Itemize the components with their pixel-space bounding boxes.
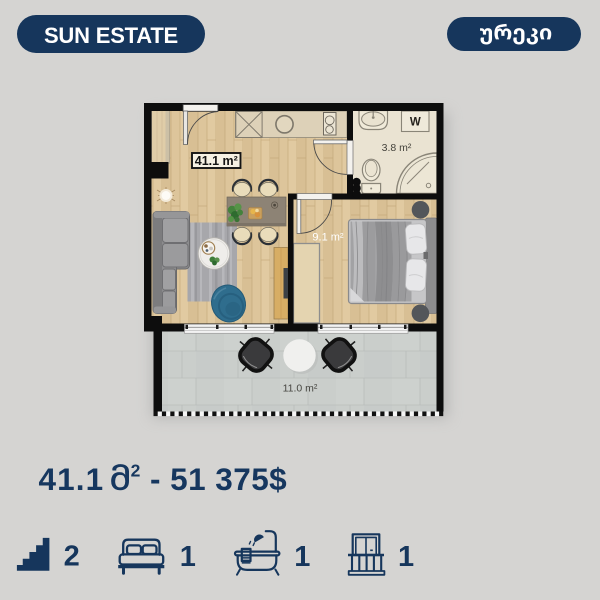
svg-text:- 51 375$: - 51 375$: [150, 461, 287, 497]
svg-text:1: 1: [398, 541, 414, 573]
svg-text:9.1 m²: 9.1 m²: [312, 232, 344, 244]
svg-text:41.1 m²: 41.1 m²: [195, 154, 238, 168]
svg-text:1: 1: [180, 541, 196, 573]
svg-text:11.0 m²: 11.0 m²: [283, 383, 318, 395]
svg-text:3.8 m²: 3.8 m²: [382, 142, 412, 154]
svg-text:W: W: [410, 117, 421, 129]
svg-text:41.1: 41.1: [39, 461, 105, 497]
svg-text:1: 1: [294, 541, 310, 573]
svg-text:2: 2: [131, 460, 141, 480]
svg-text:2: 2: [64, 541, 80, 573]
